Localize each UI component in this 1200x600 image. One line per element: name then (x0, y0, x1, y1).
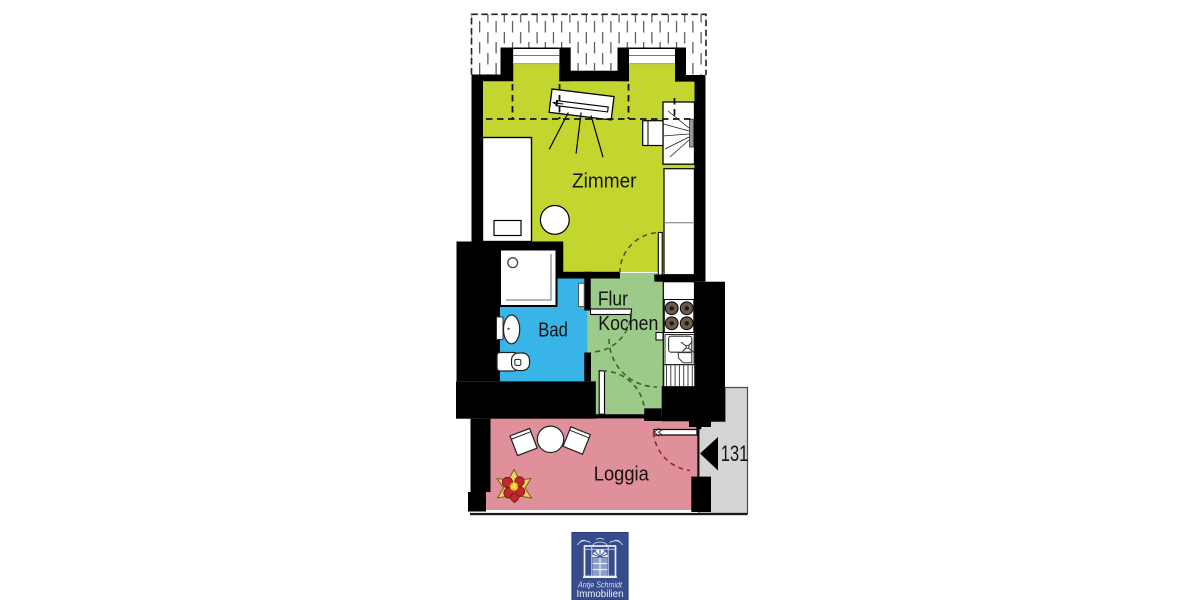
svg-text:Flur: Flur (598, 287, 628, 310)
svg-text:Immobilien: Immobilien (577, 589, 624, 600)
svg-text:Loggia: Loggia (594, 463, 650, 486)
svg-text:131: 131 (721, 441, 749, 466)
svg-text:Bad: Bad (538, 318, 568, 341)
svg-text:Kochen: Kochen (598, 312, 658, 335)
svg-text:Zimmer: Zimmer (572, 170, 637, 193)
